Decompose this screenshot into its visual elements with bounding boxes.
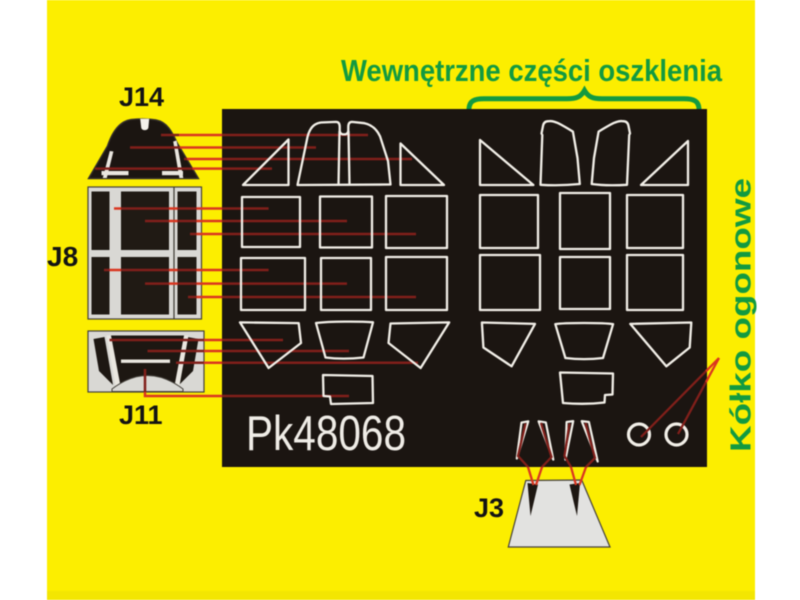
svg-text:J3: J3 (474, 493, 504, 523)
svg-text:Pk48068: Pk48068 (246, 407, 406, 461)
svg-text:J14: J14 (119, 82, 164, 112)
svg-text:J11: J11 (119, 400, 163, 430)
svg-text:Wewnętrzne części oszklenia: Wewnętrzne części oszklenia (341, 53, 723, 88)
svg-text:Kółko ogonowe: Kółko ogonowe (726, 178, 758, 452)
svg-text:J8: J8 (47, 241, 78, 272)
